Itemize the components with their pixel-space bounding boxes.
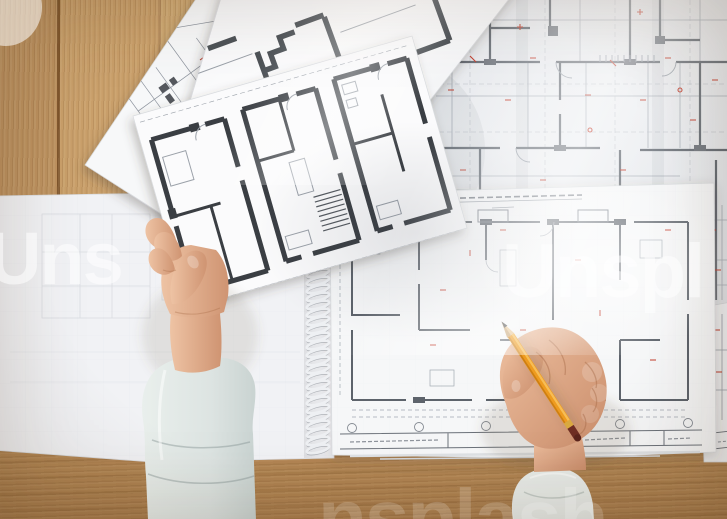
photo-architect-desk: Uns Unspl nsplash (0, 0, 727, 519)
watermark-fragment-center: Unspl (502, 234, 703, 310)
watermark-fragment-left: Uns (0, 222, 122, 296)
watermark-fragment-bottom: nsplash (318, 478, 606, 519)
